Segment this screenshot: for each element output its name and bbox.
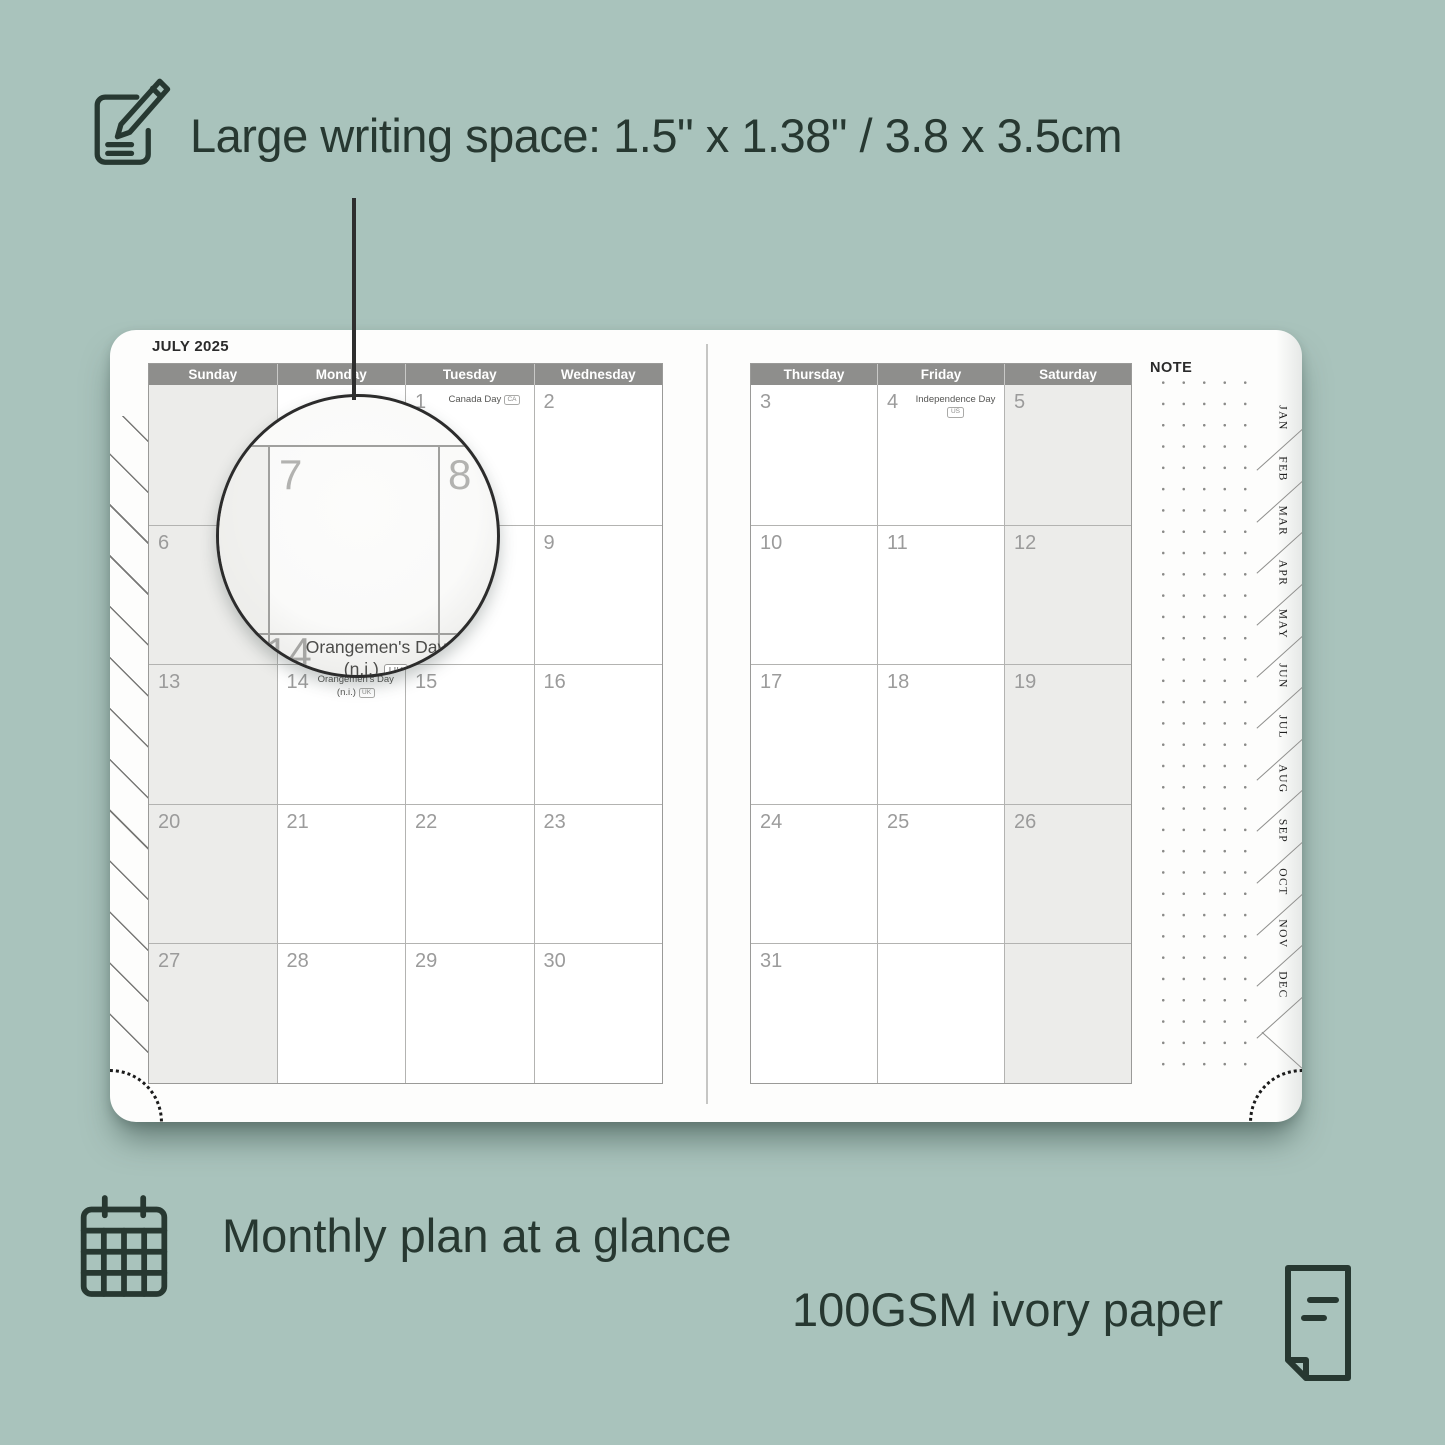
month-tab-aug: AUG (1258, 753, 1302, 805)
calendar-cell-19: 19 (1005, 665, 1131, 804)
calendar-cell-empty (878, 944, 1005, 1083)
date-number: 11 (887, 532, 908, 555)
month-tab-label: AUG (1277, 764, 1289, 793)
holiday-country-badge: UK (359, 688, 375, 698)
magnified-grid-line (219, 633, 497, 635)
date-number: 17 (760, 671, 782, 694)
holiday-label: Independence Day US (910, 394, 1001, 419)
date-number: 9 (544, 532, 555, 555)
calendar-icon (76, 1188, 172, 1304)
calendar-cell-24: 24 (751, 805, 878, 944)
date-number: 26 (1014, 811, 1036, 834)
month-tab-apr: APR (1258, 547, 1302, 599)
calendar-cell-22: 22 (406, 805, 535, 944)
date-number: 18 (887, 671, 909, 694)
calendar-cell-30: 30 (535, 944, 663, 1083)
product-image: { "annotations": { "top_feature": "Large… (0, 0, 1445, 1445)
calendar-cell-2: 2 (535, 385, 663, 525)
month-tab-label: JUN (1277, 663, 1289, 689)
calendar-week-row: 34Independence Day US5 (751, 385, 1131, 525)
calendar-cell-20: 20 (149, 805, 278, 944)
month-tab-oct: OCT (1258, 856, 1302, 908)
calendar-cell-17: 17 (751, 665, 878, 804)
calendar-cell-25: 25 (878, 805, 1005, 944)
calendar-week-row: 27282930 (149, 943, 662, 1083)
magnified-sunday-shading (219, 445, 268, 675)
date-number: 22 (415, 811, 437, 834)
magnified-holiday-line1: Orangemen's Day (306, 637, 447, 657)
calendar-cell-13: 13 (149, 665, 278, 804)
date-number: 6 (158, 532, 169, 555)
calendar-week-row: 1314Orangemen's Day (n.i.) UK1516 (149, 664, 662, 804)
left-page-edge-tabs (110, 416, 148, 1064)
feature-writing-space-text: Large writing space: 1.5" x 1.38" / 3.8 … (190, 108, 1122, 163)
date-number: 3 (760, 391, 771, 414)
month-tab-nov: NOV (1258, 908, 1302, 960)
date-number: 29 (415, 950, 437, 973)
date-number: 13 (158, 671, 180, 694)
calendar-cell-15: 15 (406, 665, 535, 804)
calendar-cell-27: 27 (149, 944, 278, 1083)
date-number: 31 (760, 950, 782, 973)
month-tab-rail: JANFEBMARAPRMAYJUNJULAUGSEPOCTNOVDEC (1258, 392, 1302, 1012)
magnifier-connector-line (352, 198, 356, 400)
calendar-cell-23: 23 (535, 805, 663, 944)
weekday-header-saturday: Saturday (1005, 364, 1131, 385)
month-tab-sep: SEP (1258, 805, 1302, 857)
month-tab-jan: JAN (1258, 392, 1302, 444)
date-number: 4 (887, 391, 898, 414)
date-number: 20 (158, 811, 180, 834)
feature-monthly-text: Monthly plan at a glance (222, 1208, 732, 1263)
weekday-header-tuesday: Tuesday (406, 364, 535, 385)
calendar-right-page: ThursdayFridaySaturday 34Independence Da… (750, 363, 1132, 1084)
calendar-cell-21: 21 (278, 805, 407, 944)
calendar-week-row: 31 (751, 943, 1131, 1083)
calendar-cell-5: 5 (1005, 385, 1131, 525)
date-number: 27 (158, 950, 180, 973)
magnified-holiday-text: Orangemen's Day (n.i.) UK (297, 637, 455, 678)
date-number: 10 (760, 532, 782, 555)
paper-icon (1274, 1262, 1362, 1384)
calendar-week-row: 20212223 (149, 804, 662, 944)
feature-paper-text: 100GSM ivory paper (792, 1282, 1223, 1337)
note-dot-grid (1148, 364, 1262, 1082)
month-tab-dec: DEC (1258, 960, 1302, 1012)
calendar-cell-empty (1005, 944, 1131, 1083)
note-pencil-icon (84, 76, 172, 171)
month-tab-mar: MAR (1258, 495, 1302, 547)
magnified-date-8: 8 (448, 451, 471, 499)
weekday-header-row: SundayMondayTuesdayWednesday (149, 364, 662, 385)
date-number: 5 (1014, 391, 1025, 414)
date-number: 24 (760, 811, 782, 834)
month-tab-label: SEP (1277, 818, 1289, 842)
magnified-grid-line (219, 445, 497, 447)
magnified-date-7: 7 (279, 451, 302, 499)
month-tab-jun: JUN (1258, 650, 1302, 702)
calendar-cell-12: 12 (1005, 526, 1131, 665)
date-number: 16 (544, 671, 566, 694)
weekday-header-thursday: Thursday (751, 364, 878, 385)
magnified-holiday-line2: (n.i.) (344, 659, 379, 678)
date-number: 21 (287, 811, 309, 834)
month-tab-jul: JUL (1258, 702, 1302, 754)
calendar-cell-28: 28 (278, 944, 407, 1083)
calendar-cell-14: 14Orangemen's Day (n.i.) UK (278, 665, 407, 804)
calendar-cell-11: 11 (878, 526, 1005, 665)
calendar-cell-9: 9 (535, 526, 663, 665)
weekday-header-friday: Friday (878, 364, 1005, 385)
weekday-header-wednesday: Wednesday (535, 364, 663, 385)
month-tab-label: NOV (1277, 919, 1289, 948)
calendar-cell-26: 26 (1005, 805, 1131, 944)
weekday-header-monday: Monday (278, 364, 407, 385)
calendar-cell-3: 3 (751, 385, 878, 525)
calendar-week-row: 101112 (751, 525, 1131, 665)
month-tab-label: JAN (1277, 405, 1289, 431)
page-spine (706, 344, 708, 1104)
note-label: NOTE (1150, 360, 1198, 376)
month-tab-label: FEB (1277, 457, 1289, 483)
month-tab-feb: FEB (1258, 444, 1302, 496)
month-tab-label: DEC (1277, 972, 1289, 1000)
month-tab-label: MAY (1277, 609, 1289, 639)
calendar-cell-4: 4Independence Day US (878, 385, 1005, 525)
weekday-header-sunday: Sunday (149, 364, 278, 385)
calendar-cell-10: 10 (751, 526, 878, 665)
date-number: 12 (1014, 532, 1036, 555)
weekday-header-row: ThursdayFridaySaturday (751, 364, 1131, 385)
month-tab-may: MAY (1258, 598, 1302, 650)
calendar-cell-29: 29 (406, 944, 535, 1083)
calendar-week-row: 171819 (751, 664, 1131, 804)
holiday-label: Canada Day CA (438, 394, 531, 406)
date-number: 30 (544, 950, 566, 973)
month-tab-label: OCT (1277, 868, 1289, 896)
magnifier-circle: 7 8 14 Orangemen's Day (n.i.) UK (216, 394, 500, 678)
holiday-country-badge: CA (504, 395, 520, 405)
calendar-cell-31: 31 (751, 944, 878, 1083)
holiday-country-badge: US (947, 407, 963, 417)
month-tab-label: APR (1277, 559, 1289, 586)
date-number: 25 (887, 811, 909, 834)
calendar-week-row: 242526 (751, 804, 1131, 944)
calendar-cell-18: 18 (878, 665, 1005, 804)
month-title: JULY 2025 (152, 338, 229, 355)
month-tab-label: JUL (1277, 715, 1289, 739)
date-number: 2 (544, 391, 555, 414)
month-tab-label: MAR (1277, 506, 1289, 537)
date-number: 23 (544, 811, 566, 834)
calendar-cell-16: 16 (535, 665, 663, 804)
date-number: 19 (1014, 671, 1036, 694)
date-number: 28 (287, 950, 309, 973)
